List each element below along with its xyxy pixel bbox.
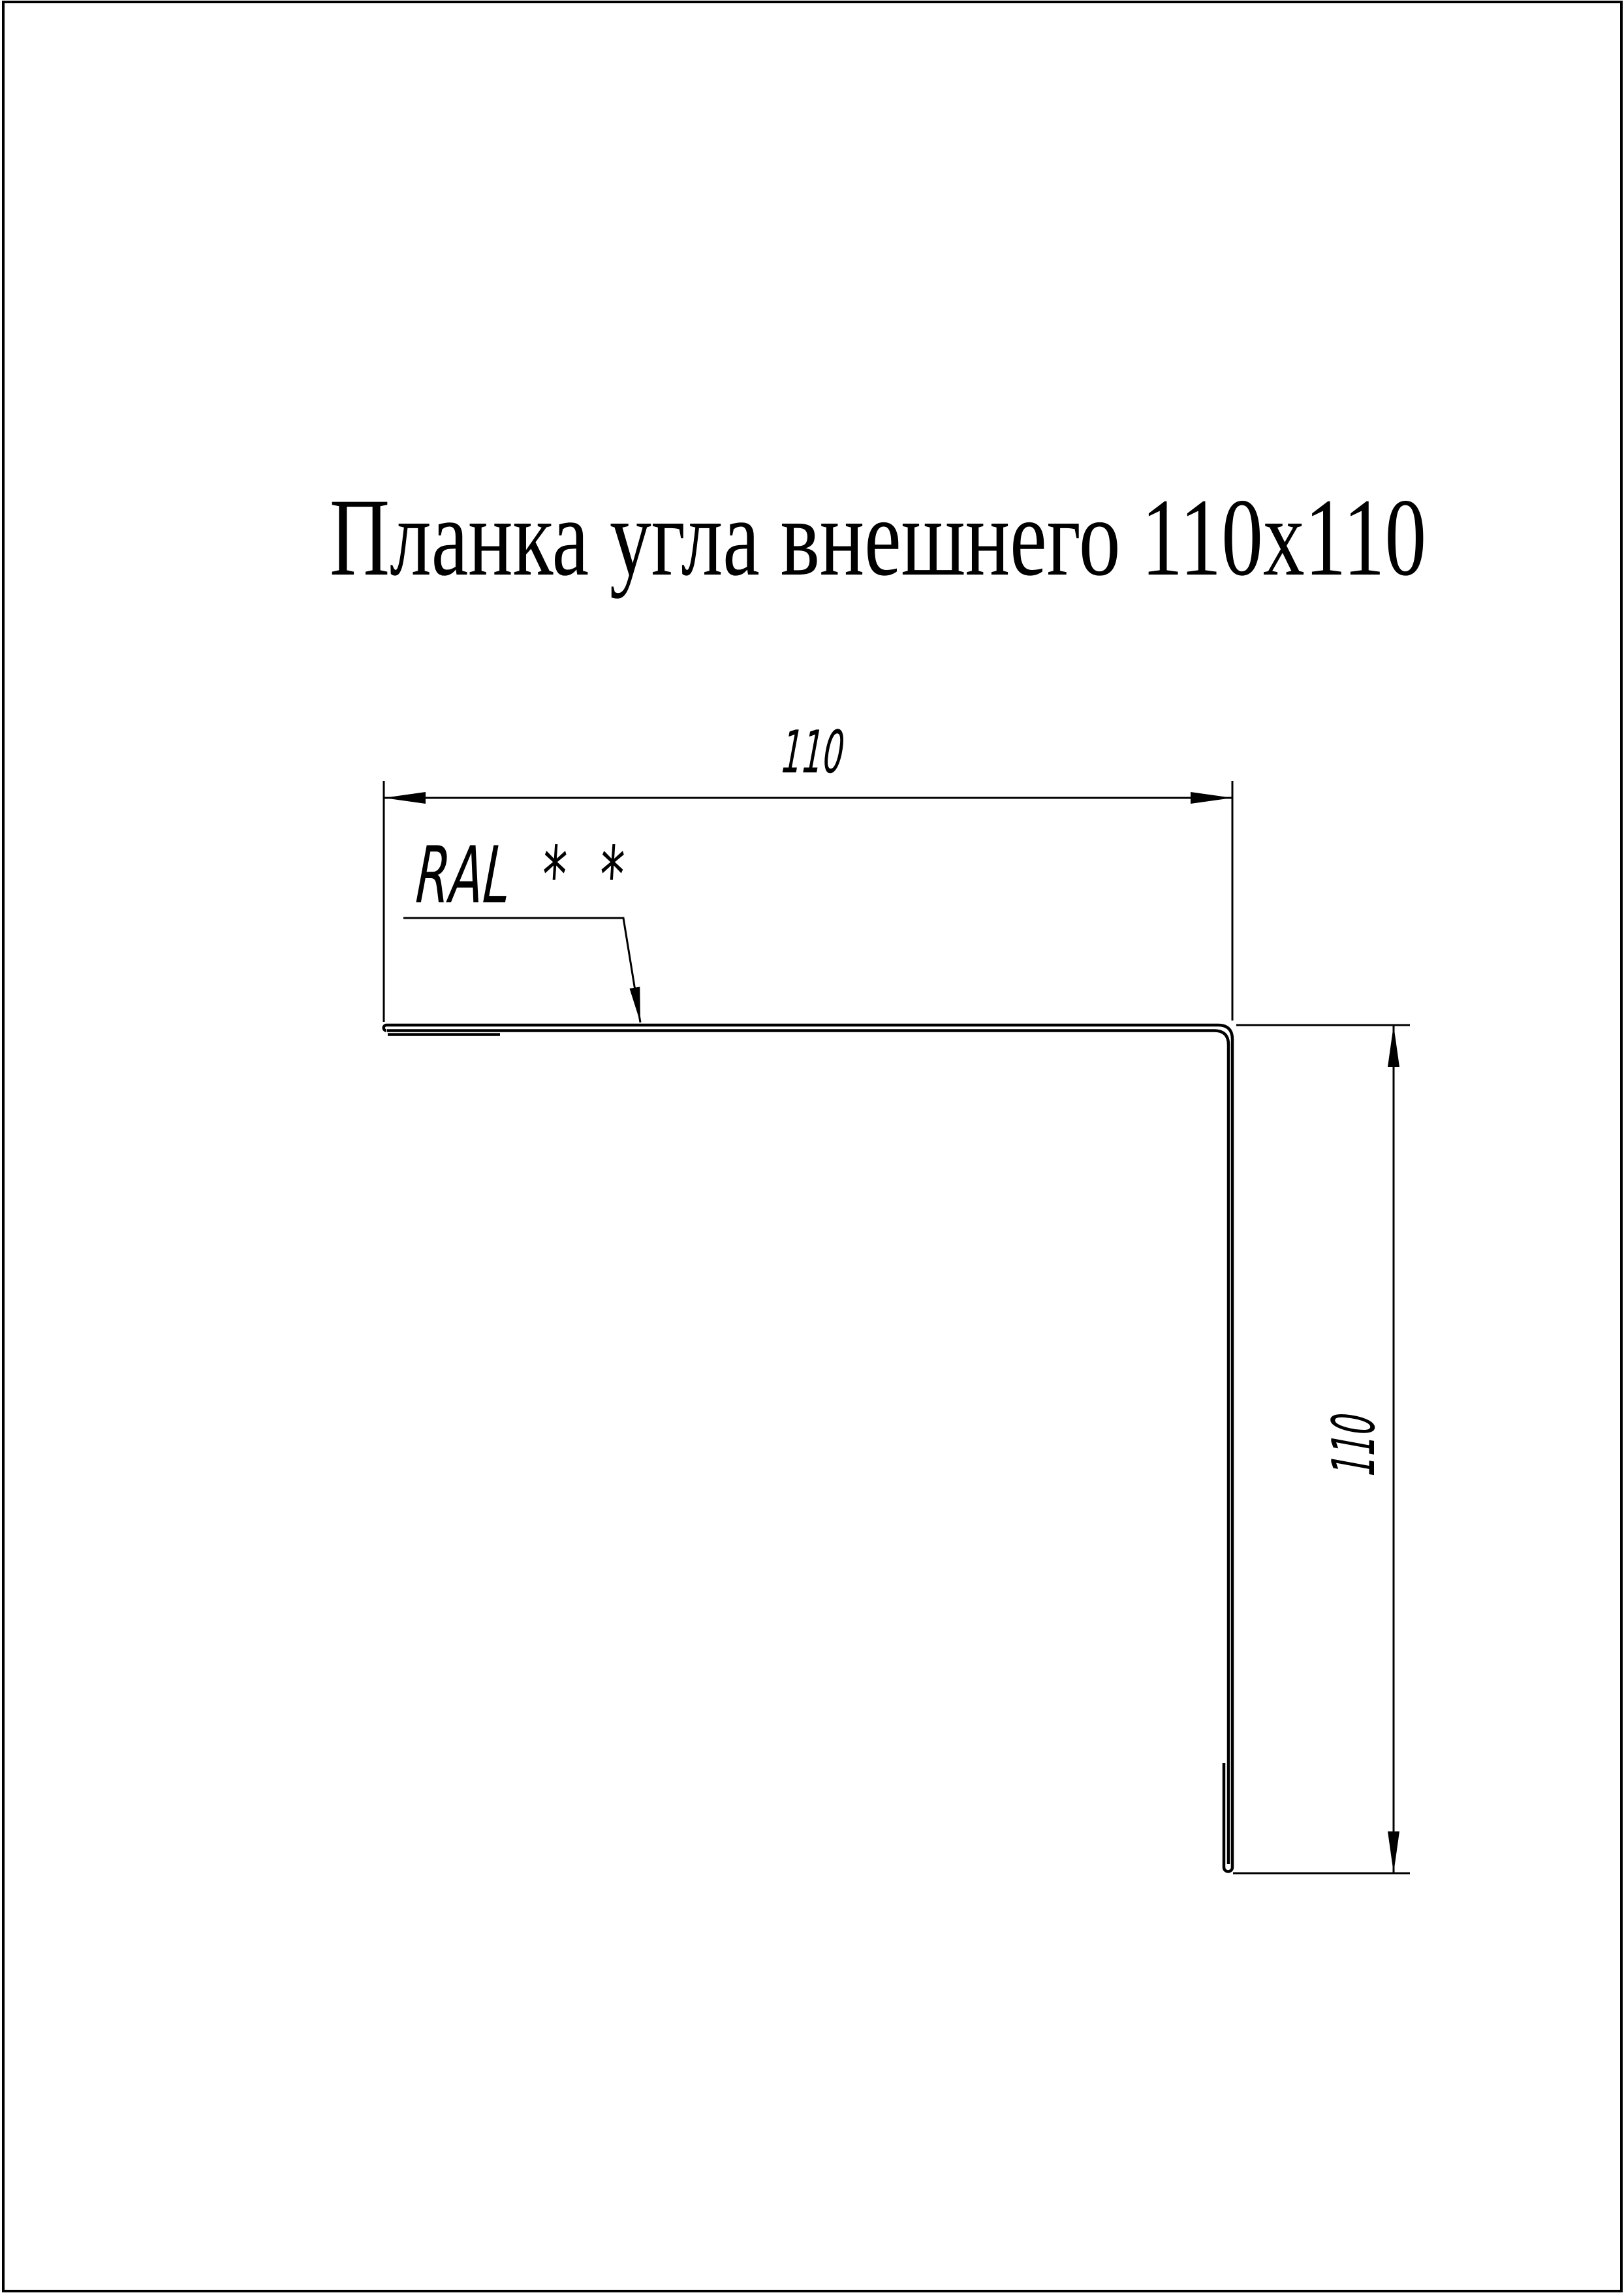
ral-callout-text: RAL	[414, 831, 514, 921]
profile-drawing	[0, 0, 1624, 2295]
ral-callout-stars: * *	[539, 831, 636, 921]
dimension-side-label-wrap: 110	[1322, 1359, 1387, 1529]
profile-inner-line	[387, 1031, 1228, 1865]
dimension-top-label: 110	[757, 723, 869, 782]
dimension-side-label: 110	[1325, 1411, 1384, 1477]
ral-leader-arrow	[630, 987, 641, 1022]
dim-arrow-right	[1191, 792, 1232, 804]
dim-arrow-left	[384, 792, 426, 804]
dim-arrow-side-bottom	[1388, 1831, 1399, 1873]
ral-leader-line	[403, 918, 640, 1022]
profile-outer-line	[386, 1025, 1232, 1872]
profile-left-hem-curl	[384, 1025, 386, 1031]
drawing-sheet: Планка угла внешнего 110x110	[0, 0, 1624, 2295]
dim-arrow-side-top	[1388, 1025, 1399, 1067]
ral-callout: RAL* *	[414, 837, 635, 915]
